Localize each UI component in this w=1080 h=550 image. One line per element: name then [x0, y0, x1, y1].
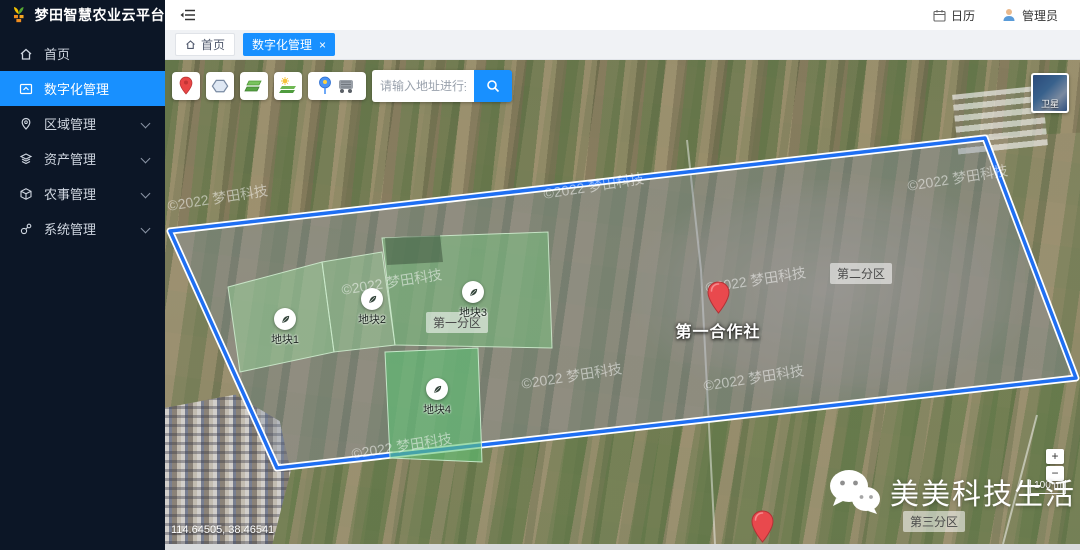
sidebar-item-system-management[interactable]: 系统管理	[0, 211, 165, 246]
cursor-coordinates: 114.64505, 38.46541	[171, 524, 274, 536]
top-header: 日历 管理员	[165, 0, 1080, 30]
polygon-icon	[211, 78, 229, 94]
tab-bar: 首页 数字化管理 ×	[165, 30, 1080, 60]
layer-switch-label: 卫星	[1033, 97, 1067, 110]
collapse-menu-icon	[179, 7, 197, 23]
avatar	[1001, 7, 1017, 23]
leaf-marker-icon	[462, 281, 484, 303]
plot-marker-3[interactable]: 地块3	[451, 281, 495, 320]
dashboard-edit-icon	[18, 81, 34, 97]
tab-home[interactable]: 首页	[175, 33, 235, 56]
home-icon	[18, 46, 34, 62]
bottom-strip	[165, 544, 1080, 550]
draw-parcel-tool-button[interactable]	[240, 72, 268, 100]
blue-poi-pin-icon	[318, 76, 332, 96]
settings-link-icon	[18, 221, 34, 237]
sidebar: 梦田智慧农业云平台 首页 数字化管理 区域管理	[0, 0, 165, 550]
map-toolbar	[172, 70, 512, 102]
poi-machinery-tool-button[interactable]	[308, 72, 366, 100]
layer-switcher-satellite[interactable]: 卫星	[1031, 73, 1069, 113]
plot-marker-4[interactable]: 地块4	[415, 378, 459, 417]
sidebar-item-label: 农事管理	[44, 184, 96, 203]
sidebar-item-home[interactable]: 首页	[0, 36, 165, 71]
search-input[interactable]	[372, 70, 474, 102]
zoom-out-button[interactable]: −	[1046, 466, 1064, 481]
sidebar-item-farming-management[interactable]: 农事管理	[0, 176, 165, 211]
sidebar-item-label: 首页	[44, 44, 70, 63]
plot3-dark-corner	[385, 235, 443, 265]
chevron-down-icon	[141, 189, 151, 199]
sidebar-collapse-button[interactable]	[179, 7, 197, 23]
cooperative-marker-2[interactable]: 第二合作社	[719, 510, 804, 544]
search-button[interactable]	[474, 70, 512, 102]
zone-label-3: 第三分区	[903, 511, 965, 532]
chevron-down-icon	[141, 224, 151, 234]
app-logo-sprout-icon	[10, 4, 28, 26]
header-right: 日历 管理员	[933, 7, 1080, 24]
zone-label-2: 第二分区	[830, 263, 892, 284]
cooperative-marker-1[interactable]: 第一合作社	[675, 281, 760, 342]
sidebar-menu: 首页 数字化管理 区域管理 资产管理	[0, 36, 165, 246]
sidebar-item-label: 区域管理	[44, 114, 96, 133]
add-marker-tool-button[interactable]	[172, 72, 200, 100]
draw-polygon-tool-button[interactable]	[206, 72, 234, 100]
sidebar-item-asset-management[interactable]: 资产管理	[0, 141, 165, 176]
zoom-control: + −	[1046, 449, 1064, 483]
sidebar-item-label: 资产管理	[44, 149, 96, 168]
machinery-icon	[336, 78, 356, 94]
sidebar-item-digital-management[interactable]: 数字化管理	[0, 71, 165, 106]
app-title: 梦田智慧农业云平台	[35, 5, 166, 25]
logo-row: 梦田智慧农业云平台	[0, 0, 165, 30]
address-search	[372, 70, 512, 102]
map-pin-icon	[18, 116, 34, 132]
map-polygon-overlay	[165, 60, 1080, 544]
leaf-marker-icon	[361, 288, 383, 310]
field-parcel-icon	[244, 78, 264, 94]
sidebar-item-label: 数字化管理	[44, 79, 109, 98]
tab-label: 首页	[201, 36, 225, 53]
red-pin-icon	[706, 281, 730, 315]
search-icon	[486, 79, 500, 93]
farm-sun-icon	[278, 77, 298, 95]
farm-layer-tool-button[interactable]	[274, 72, 302, 100]
plot-label: 地块1	[263, 331, 307, 347]
plot-label: 地块2	[350, 311, 394, 327]
chevron-down-icon	[141, 154, 151, 164]
calendar-button[interactable]: 日历	[933, 7, 975, 24]
calendar-icon	[933, 9, 946, 22]
sidebar-item-label: 系统管理	[44, 219, 96, 238]
leaf-marker-icon	[274, 308, 296, 330]
plot-label: 地块4	[415, 401, 459, 417]
chevron-down-icon	[141, 119, 151, 129]
red-pin-icon	[750, 510, 774, 544]
zoom-in-button[interactable]: +	[1046, 449, 1064, 464]
map-canvas[interactable]: ©2022 梦田科技 ©2022 梦田科技 ©2022 梦田科技 ©2022 梦…	[165, 60, 1080, 544]
leaf-marker-icon	[426, 378, 448, 400]
close-icon[interactable]: ×	[319, 39, 326, 51]
tab-label: 数字化管理	[252, 36, 312, 53]
cooperative-label: 第一合作社	[675, 318, 760, 342]
admin-user-button[interactable]: 管理员	[1001, 7, 1058, 24]
layers-icon	[18, 151, 34, 167]
sidebar-item-region-management[interactable]: 区域管理	[0, 106, 165, 141]
app-window: 梦田智慧农业云平台 首页 数字化管理 区域管理	[0, 0, 1080, 550]
admin-label: 管理员	[1022, 7, 1058, 24]
plot-marker-2[interactable]: 地块2	[350, 288, 394, 327]
home-icon	[185, 39, 196, 50]
tab-digital-management[interactable]: 数字化管理 ×	[243, 33, 335, 56]
cube-icon	[18, 186, 34, 202]
plot-marker-1[interactable]: 地块1	[263, 308, 307, 347]
red-pin-icon	[178, 76, 194, 96]
plot-label: 地块3	[451, 304, 495, 320]
calendar-label: 日历	[951, 7, 975, 24]
